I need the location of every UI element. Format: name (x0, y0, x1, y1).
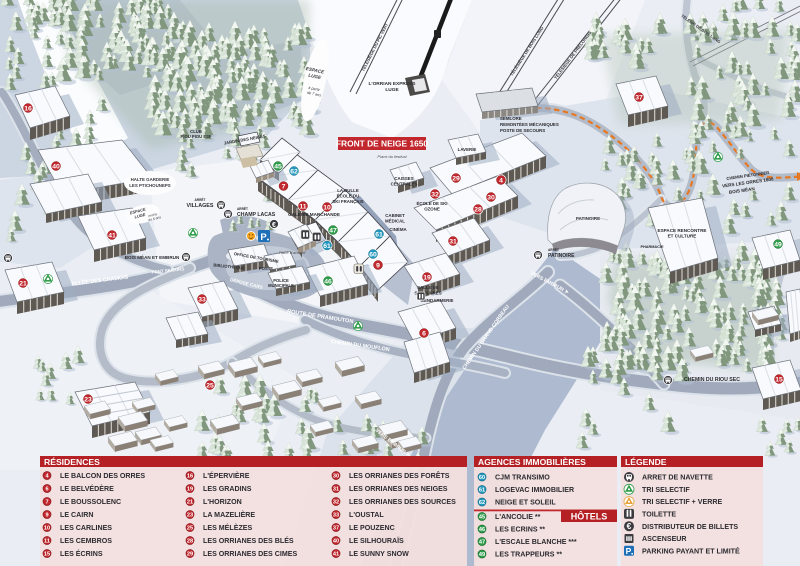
svg-text:ARRÊT: ARRÊT (548, 247, 559, 252)
svg-text:49: 49 (774, 241, 782, 248)
svg-text:Place du festival: Place du festival (377, 154, 406, 159)
svg-text:33: 33 (333, 513, 339, 519)
svg-text:POSTE DE SECOURS: POSTE DE SECOURS (500, 128, 545, 133)
svg-text:LES ORRIANES DES NEIGES: LES ORRIANES DES NEIGES (349, 485, 448, 493)
svg-text:LES ORRIANES DES SOURCES: LES ORRIANES DES SOURCES (349, 498, 456, 506)
svg-text:LE CAIRN: LE CAIRN (60, 511, 94, 519)
svg-text:61: 61 (479, 488, 485, 494)
svg-text:ARRET DE NAVETTE: ARRET DE NAVETTE (642, 474, 713, 482)
svg-text:LES MÉLÈZES: LES MÉLÈZES (203, 523, 253, 532)
svg-text:4: 4 (499, 177, 503, 184)
svg-text:31: 31 (449, 238, 457, 245)
svg-text:LES GRADINS: LES GRADINS (203, 485, 252, 493)
svg-text:46: 46 (324, 278, 332, 285)
svg-text:GENDARMERIE: GENDARMERIE (421, 298, 454, 303)
svg-text:47: 47 (479, 540, 485, 546)
svg-text:FRONT DE NEIGE 1650: FRONT DE NEIGE 1650 (336, 139, 428, 149)
svg-text:19: 19 (423, 274, 431, 281)
svg-text:PHARMACIE: PHARMACIE (641, 245, 664, 249)
svg-text:LES ECRINS **: LES ECRINS ** (495, 526, 545, 534)
svg-text:Place d'accueil: Place d'accueil (279, 250, 306, 255)
svg-text:15: 15 (44, 552, 50, 558)
svg-text:32: 32 (333, 500, 339, 506)
svg-text:DISTRIBUTEUR DE BILLETS: DISTRIBUTEUR DE BILLETS (642, 523, 738, 531)
svg-text:CAISSES: CAISSES (394, 176, 413, 181)
svg-text:CENTRALES: CENTRALES (391, 181, 418, 186)
svg-text:SKI FRANÇAIS: SKI FRANÇAIS (332, 199, 363, 204)
svg-text:MÉDICAL: MÉDICAL (385, 218, 405, 223)
svg-text:11: 11 (44, 539, 50, 545)
svg-text:TOILETTE: TOILETTE (642, 511, 676, 519)
svg-text:ET CULTURE: ET CULTURE (668, 234, 697, 239)
svg-text:LE POUZENC: LE POUZENC (349, 524, 395, 532)
svg-text:45: 45 (479, 515, 485, 521)
svg-text:LES ÉCRINS: LES ÉCRINS (60, 549, 103, 558)
svg-text:TRI SELECTIF: TRI SELECTIF (642, 486, 690, 494)
svg-text:LES PTICHOUNEPS: LES PTICHOUNEPS (129, 183, 171, 188)
svg-text:P: P (626, 546, 632, 556)
svg-text:19: 19 (187, 487, 193, 493)
svg-text:40: 40 (52, 163, 60, 170)
svg-text:6: 6 (45, 487, 48, 493)
svg-text:HALTE GARDERIE: HALTE GARDERIE (131, 177, 170, 182)
svg-text:61: 61 (323, 243, 331, 250)
svg-text:49: 49 (479, 552, 485, 558)
svg-text:L'OUSTAL: L'OUSTAL (349, 511, 384, 519)
svg-text:16: 16 (187, 474, 193, 480)
svg-text:25: 25 (206, 382, 214, 389)
svg-text:41: 41 (333, 552, 339, 558)
svg-text:9: 9 (376, 262, 380, 269)
svg-text:LA BULLE: LA BULLE (337, 188, 359, 193)
svg-text:41: 41 (108, 232, 116, 239)
svg-text:LOGEVAC IMMOBILIER: LOGEVAC IMMOBILIER (495, 486, 574, 494)
svg-text:30: 30 (333, 474, 339, 480)
svg-text:6: 6 (422, 330, 426, 337)
svg-text:21: 21 (187, 500, 193, 506)
svg-text:OZONE: OZONE (424, 206, 440, 211)
svg-text:10: 10 (44, 526, 50, 532)
svg-text:31: 31 (333, 487, 339, 493)
svg-text:10: 10 (323, 204, 331, 211)
svg-text:VILLAGES: VILLAGES (187, 203, 214, 209)
svg-text:SEMLORE: SEMLORE (500, 116, 522, 121)
svg-text:PATINOIRE: PATINOIRE (548, 253, 575, 259)
svg-text:€: € (272, 222, 276, 229)
svg-text:L'ÉPERVIÈRE: L'ÉPERVIÈRE (203, 471, 250, 480)
svg-text:28: 28 (474, 206, 482, 213)
svg-text:33: 33 (198, 296, 206, 303)
svg-text:37: 37 (635, 94, 643, 101)
svg-text:CINÉMA: CINÉMA (389, 227, 407, 232)
svg-text:LES ORRIANES DES BLÉS: LES ORRIANES DES BLÉS (203, 536, 294, 545)
svg-text:L'ESCALE BLANCHE ***: L'ESCALE BLANCHE *** (495, 538, 577, 546)
svg-text:LE BOUSSOLENC: LE BOUSSOLENC (60, 498, 121, 506)
svg-text:ARRÊT: ARRÊT (195, 197, 206, 202)
svg-text:LAVERIE: LAVERIE (458, 147, 477, 152)
svg-text:€: € (627, 521, 632, 531)
svg-text:23: 23 (84, 396, 92, 403)
svg-text:LÉGENDE: LÉGENDE (625, 457, 667, 467)
svg-text:HÔTELS: HÔTELS (571, 511, 608, 522)
svg-text:21: 21 (19, 280, 27, 287)
svg-text:POSTE: POSTE (259, 266, 273, 271)
svg-text:46: 46 (479, 527, 485, 533)
svg-text:11: 11 (299, 203, 306, 210)
svg-text:32: 32 (431, 191, 439, 198)
svg-text:REMONTÉES MÉCANIQUES: REMONTÉES MÉCANIQUES (500, 122, 559, 127)
svg-text:25: 25 (187, 526, 193, 532)
svg-text:ASCENSEUR: ASCENSEUR (642, 535, 687, 543)
svg-text:40: 40 (333, 539, 339, 545)
svg-text:LES CARLINES: LES CARLINES (60, 524, 112, 532)
svg-text:LE BELVÉDÈRE: LE BELVÉDÈRE (60, 484, 114, 493)
svg-text:AGENCES IMMOBILIÈRES: AGENCES IMMOBILIÈRES (478, 457, 586, 467)
svg-text:CABINET: CABINET (385, 213, 405, 218)
svg-text:CJM TRANSIMO: CJM TRANSIMO (495, 474, 550, 482)
svg-text:LE BALCON DES ORRES: LE BALCON DES ORRES (60, 472, 145, 480)
svg-text:47: 47 (329, 227, 337, 234)
svg-text:15: 15 (775, 376, 783, 383)
svg-text:7: 7 (45, 500, 48, 506)
svg-text:9: 9 (45, 513, 48, 519)
svg-text:28: 28 (187, 539, 193, 545)
svg-text:CHEMIN DU RIOU SEC: CHEMIN DU RIOU SEC (684, 377, 740, 383)
svg-text:SALLE DE: SALLE DE (417, 285, 439, 290)
svg-text:GALERIE MARCHANDE: GALERIE MARCHANDE (288, 212, 340, 217)
svg-text:PATINOIRE: PATINOIRE (576, 216, 600, 221)
svg-text:BOIS MÉAN ET EMBRUN: BOIS MÉAN ET EMBRUN (125, 253, 180, 260)
svg-text:NEIGE ET SOLEIL: NEIGE ET SOLEIL (495, 499, 556, 507)
svg-text:P: P (260, 232, 267, 243)
svg-text:16: 16 (24, 105, 32, 112)
svg-text:L'ANCOLIE **: L'ANCOLIE ** (495, 513, 541, 521)
svg-text:LE SILHOURAÏS: LE SILHOURAÏS (349, 537, 404, 545)
svg-text:ESPACE RENCONTRE: ESPACE RENCONTRE (658, 228, 707, 233)
svg-text:60: 60 (369, 251, 377, 258)
svg-text:23: 23 (187, 513, 193, 519)
svg-text:RÉSIDENCES: RÉSIDENCES (44, 457, 100, 467)
svg-text:LES ORRIANES DES CIMES: LES ORRIANES DES CIMES (203, 550, 297, 558)
svg-text:L'ORRIAN EXPRESS: L'ORRIAN EXPRESS (369, 81, 417, 87)
svg-text:61: 61 (375, 231, 383, 238)
svg-text:PIOU PIOU ESF: PIOU PIOU ESF (181, 134, 212, 139)
svg-text:LA MAZELIÈRE: LA MAZELIÈRE (203, 510, 255, 519)
svg-text:LUGE: LUGE (385, 87, 399, 93)
svg-text:L'HORIZON: L'HORIZON (203, 498, 242, 506)
svg-text:30: 30 (487, 194, 495, 201)
svg-text:60: 60 (479, 475, 485, 481)
svg-text:ÉCOLE DU: ÉCOLE DU (337, 193, 360, 198)
svg-text:LES TRAPPEURS **: LES TRAPPEURS ** (495, 551, 562, 559)
svg-text:PARKING PAYANT ET LIMITÉ: PARKING PAYANT ET LIMITÉ (642, 546, 740, 555)
svg-text:MUNICIPALE: MUNICIPALE (268, 283, 294, 288)
svg-text:LES CEMBROS: LES CEMBROS (60, 537, 112, 545)
svg-text:29: 29 (452, 175, 460, 182)
svg-text:7: 7 (282, 183, 286, 190)
svg-text:62: 62 (479, 500, 485, 506)
svg-text:ARRÊT: ARRÊT (237, 206, 248, 211)
svg-text:CHAMP LACAS: CHAMP LACAS (237, 212, 276, 218)
svg-text:37: 37 (333, 526, 339, 532)
svg-text:ÉCOLE DE SKI: ÉCOLE DE SKI (417, 201, 448, 206)
svg-text:LES ORRIANES DES FORÊTS: LES ORRIANES DES FORÊTS (349, 471, 450, 480)
svg-text:29: 29 (187, 552, 193, 558)
svg-text:LE SUNNY SNOW: LE SUNNY SNOW (349, 550, 409, 558)
svg-text:45: 45 (274, 163, 282, 170)
svg-text:62: 62 (290, 168, 298, 175)
svg-text:TRI SELECTIF + VERRE: TRI SELECTIF + VERRE (642, 498, 722, 506)
